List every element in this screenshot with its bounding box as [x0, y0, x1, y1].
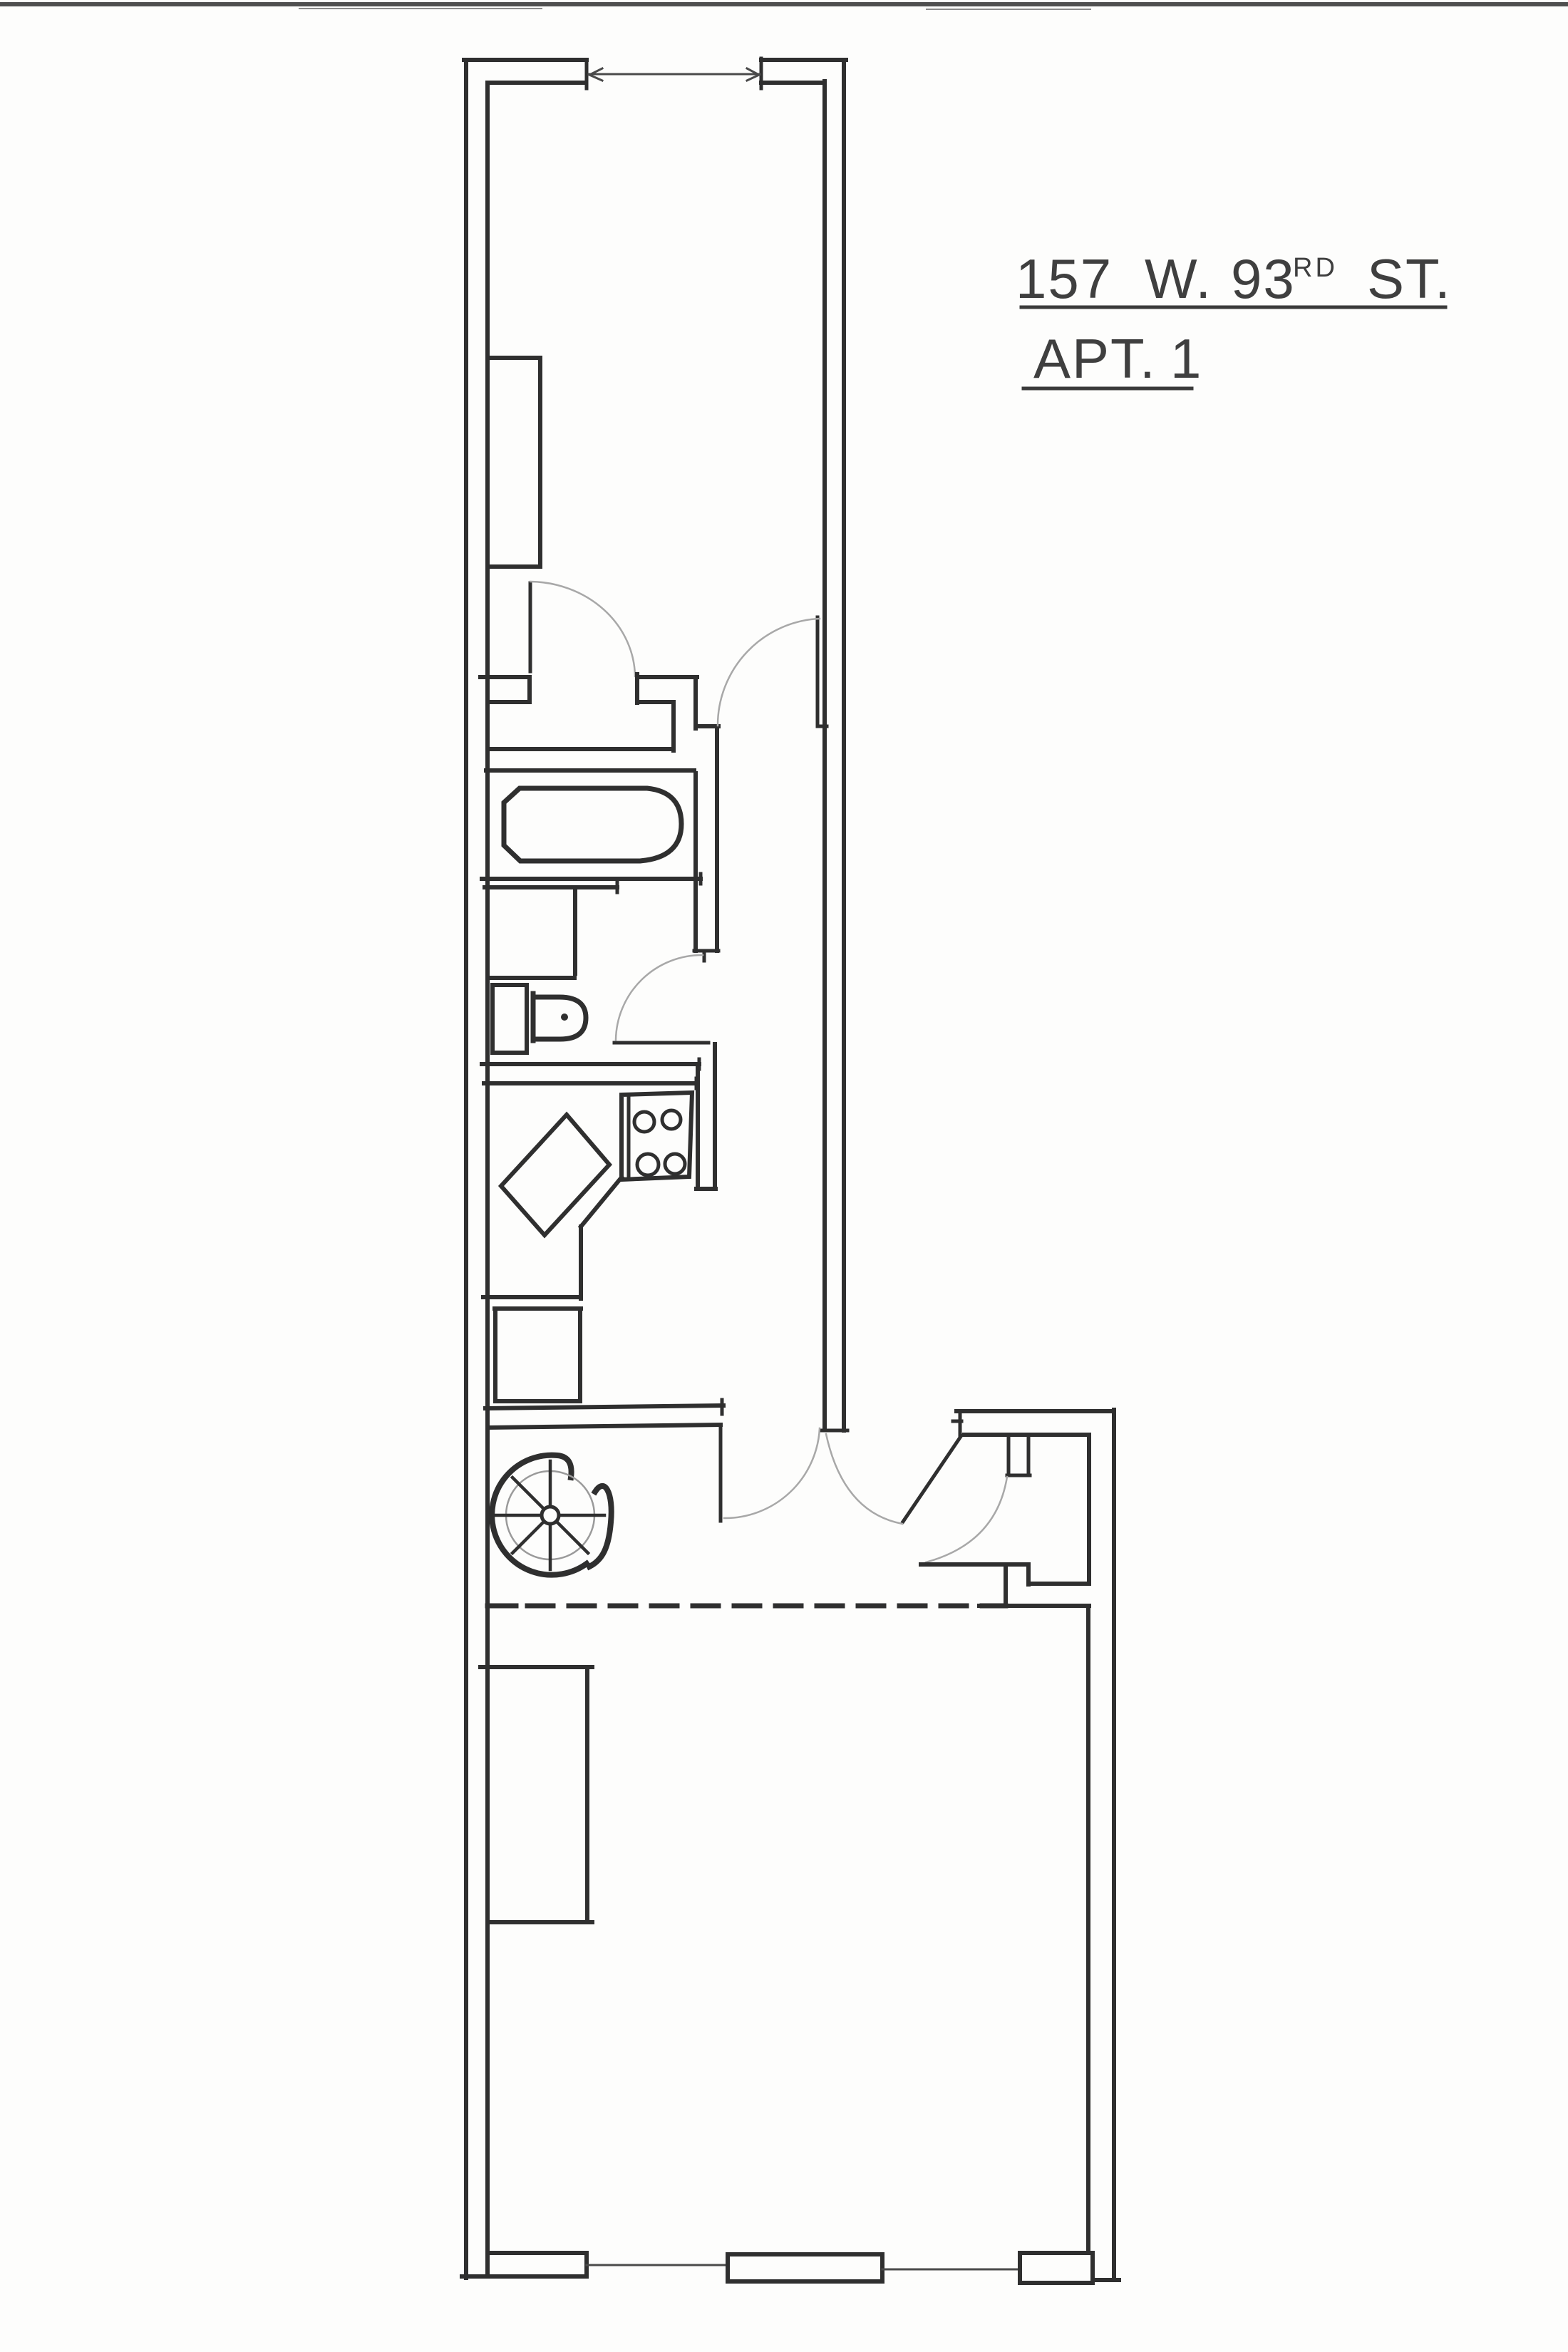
svg-text:ST.: ST.: [1367, 247, 1452, 310]
svg-text:93: 93: [1231, 247, 1296, 310]
svg-text:1: 1: [1170, 327, 1201, 390]
svg-text:RD: RD: [1293, 253, 1338, 283]
svg-text:APT.: APT.: [1033, 327, 1157, 390]
svg-text:157: 157: [1016, 247, 1113, 310]
svg-text:W.: W.: [1145, 247, 1212, 310]
